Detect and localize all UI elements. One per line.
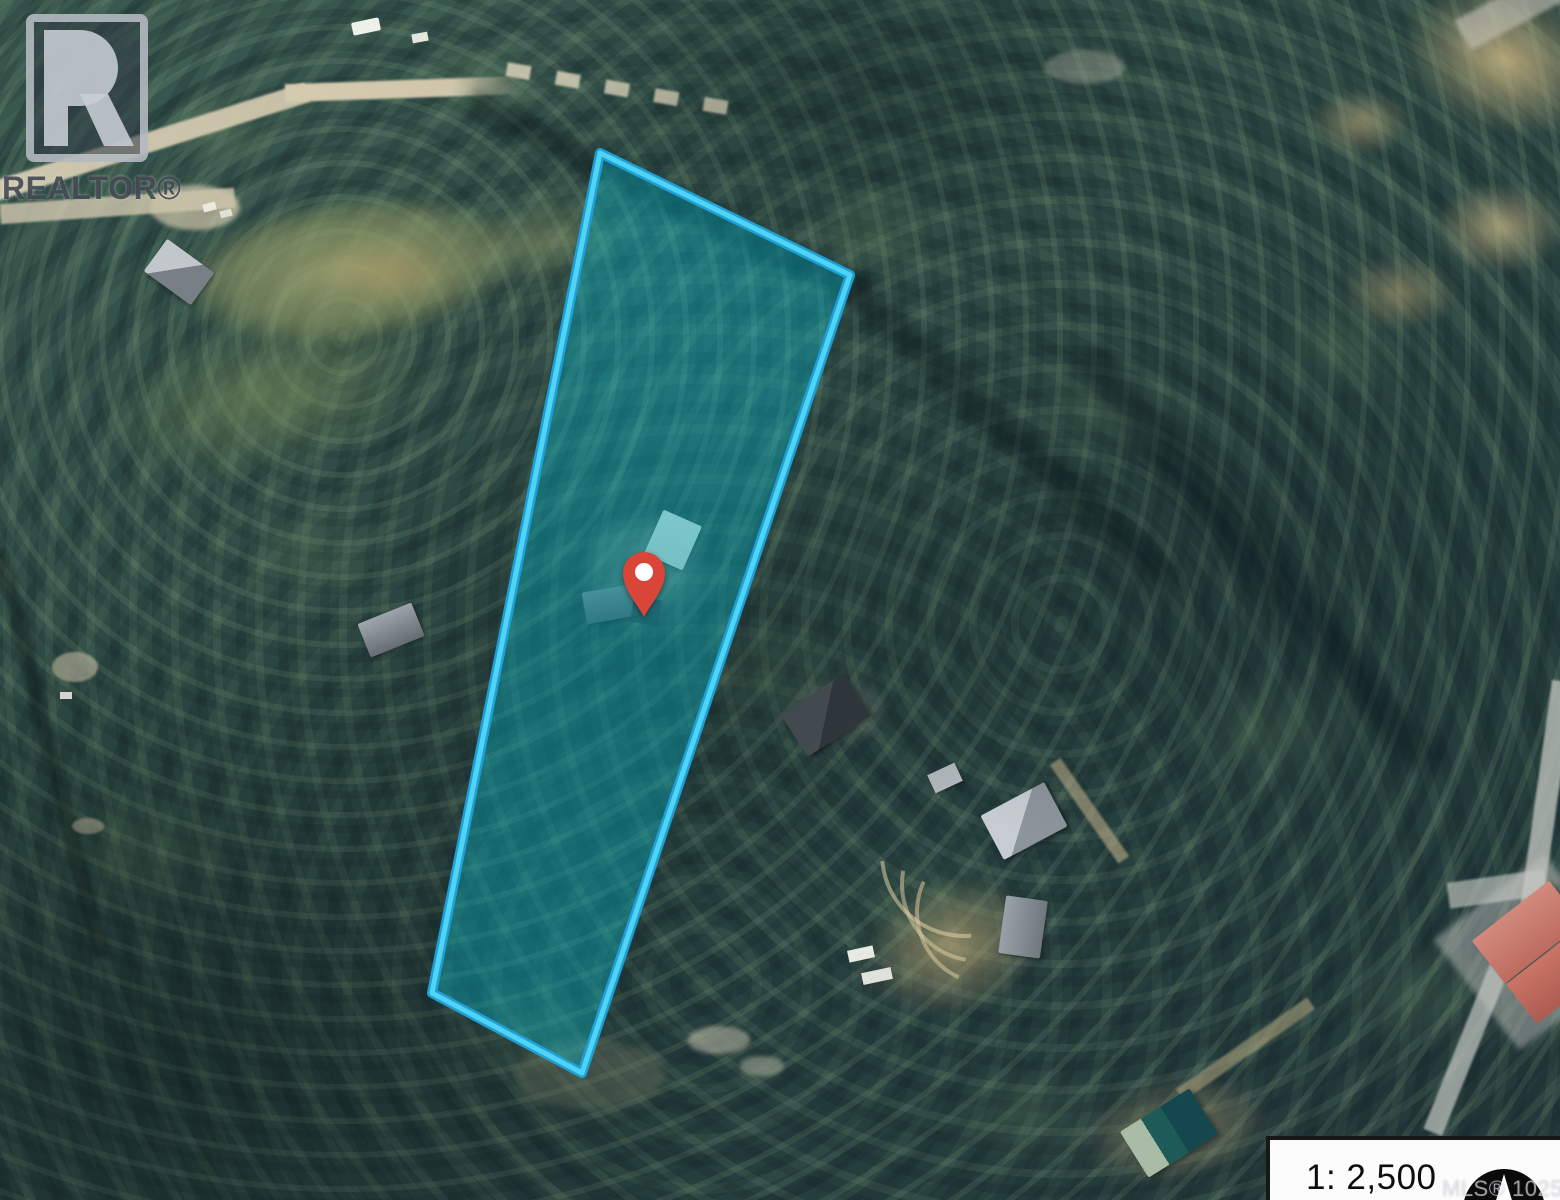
aerial-map: REALTOR® 1: 2,500 MLS® 1025715	[0, 0, 1560, 1200]
realtor-r-icon	[26, 14, 148, 162]
mls-watermark: MLS® 1025715	[1442, 1176, 1560, 1200]
scale-ratio: 1: 2,500	[1306, 1158, 1437, 1198]
map-overlay	[0, 0, 1560, 1200]
realtor-brand-text: REALTOR®	[2, 170, 188, 207]
realtor-watermark: REALTOR®	[0, 0, 190, 230]
property-boundary	[432, 153, 850, 1073]
